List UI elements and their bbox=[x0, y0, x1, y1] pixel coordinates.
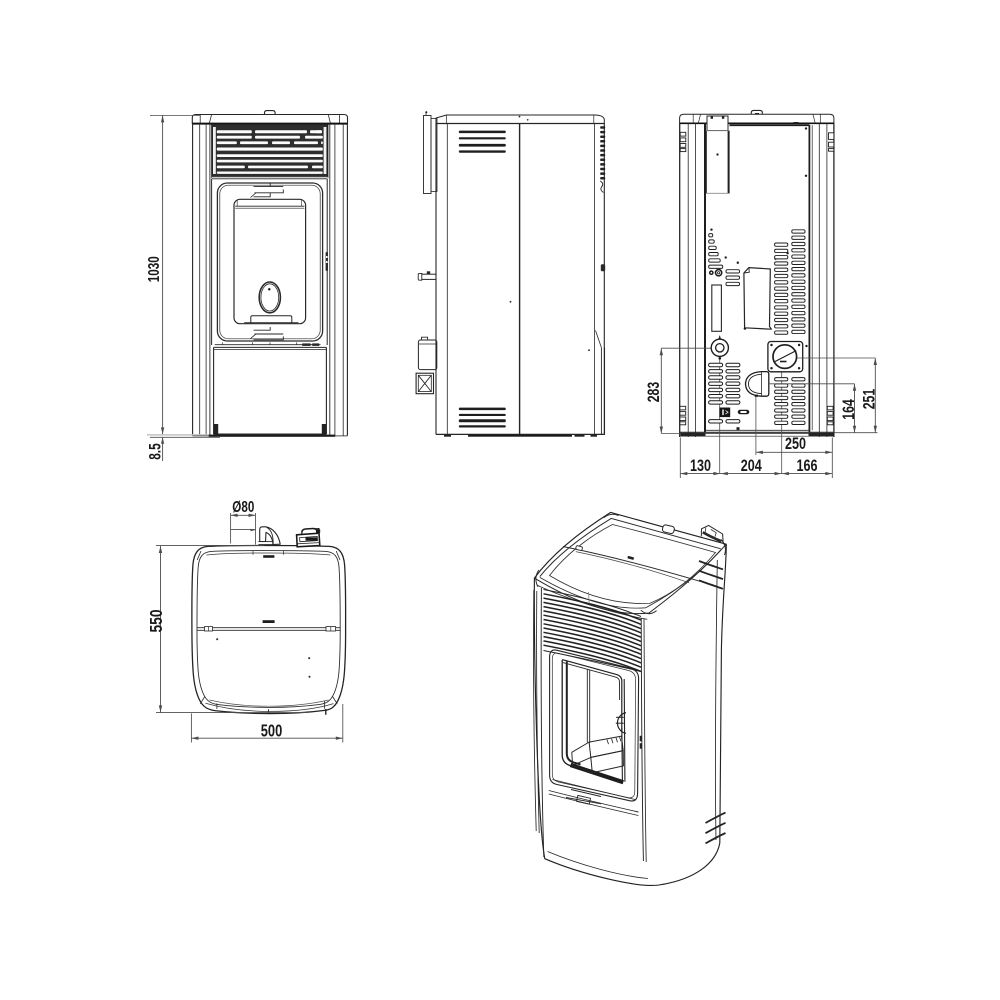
svg-text:166: 166 bbox=[797, 457, 818, 475]
svg-text:251: 251 bbox=[861, 389, 879, 410]
svg-text:500: 500 bbox=[261, 720, 283, 740]
svg-text:Ø80: Ø80 bbox=[232, 499, 254, 516]
svg-text:8.5: 8.5 bbox=[146, 443, 165, 460]
svg-text:164: 164 bbox=[840, 399, 858, 420]
svg-text:130: 130 bbox=[690, 457, 711, 475]
svg-text:283: 283 bbox=[645, 382, 663, 403]
svg-text:250: 250 bbox=[785, 435, 806, 453]
svg-text:204: 204 bbox=[741, 457, 763, 475]
svg-text:550: 550 bbox=[146, 609, 166, 632]
svg-text:1030: 1030 bbox=[146, 256, 163, 282]
